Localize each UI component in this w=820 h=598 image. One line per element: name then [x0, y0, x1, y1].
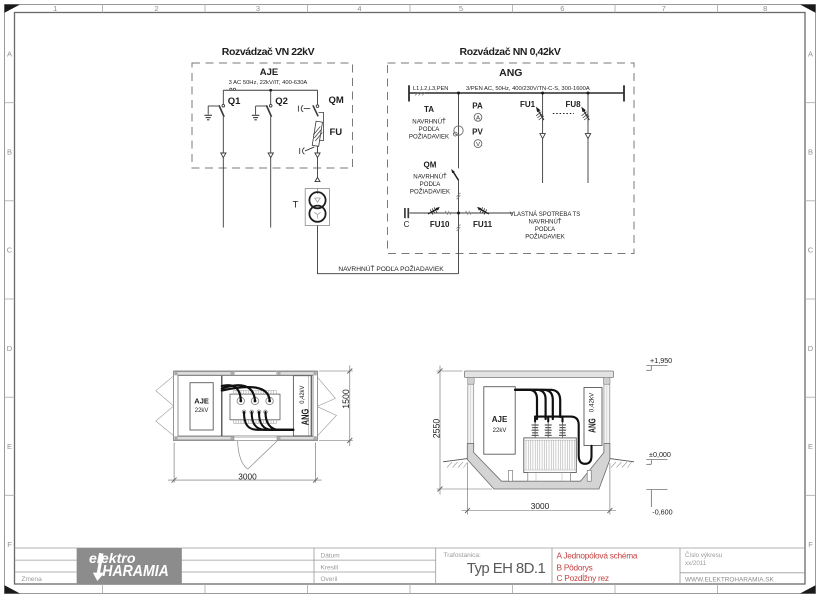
svg-text:Trafostanica:: Trafostanica:	[444, 552, 482, 559]
svg-text:POŽIADAVIEK: POŽIADAVIEK	[409, 133, 449, 141]
svg-text:VLASTNÁ SPOTREBA TS: VLASTNÁ SPOTREBA TS	[510, 211, 581, 218]
svg-text:ANG: ANG	[499, 67, 522, 79]
svg-text:22kV: 22kV	[195, 408, 209, 414]
svg-text:PODĽA: PODĽA	[535, 227, 555, 233]
svg-text:D: D	[808, 344, 814, 353]
svg-text:0,42kV: 0,42kV	[300, 386, 306, 404]
svg-text:WWW.ELEKTROHARAMIA.SK: WWW.ELEKTROHARAMIA.SK	[685, 576, 775, 583]
svg-text:±0,000: ±0,000	[649, 450, 671, 459]
svg-text:A Jednopólová schéma: A Jednopólová schéma	[557, 551, 638, 561]
svg-text:Číslo výkresu: Číslo výkresu	[685, 552, 723, 559]
svg-text:NAVRHNÚŤ PODĽA POŽIADAVIEK: NAVRHNÚŤ PODĽA POŽIADAVIEK	[338, 264, 444, 273]
svg-text:Dátum: Dátum	[321, 553, 340, 560]
svg-text:A: A	[7, 49, 12, 58]
svg-text:FU8: FU8	[565, 100, 581, 109]
svg-text:1: 1	[53, 4, 57, 13]
svg-text:PODĽA: PODĽA	[419, 126, 441, 133]
svg-text:NAVRHNÚŤ: NAVRHNÚŤ	[412, 118, 446, 126]
svg-text:FU10: FU10	[430, 220, 450, 229]
svg-text:B: B	[7, 148, 12, 157]
svg-text:Zmena: Zmena	[22, 576, 43, 583]
svg-text:4: 4	[357, 4, 361, 13]
svg-text:T: T	[293, 200, 299, 211]
svg-text:2550: 2550	[432, 419, 442, 439]
svg-text:AJE: AJE	[260, 67, 278, 78]
svg-text:PV: PV	[472, 128, 483, 137]
svg-text:PA: PA	[472, 102, 483, 111]
svg-text:5: 5	[459, 4, 463, 13]
svg-text:2: 2	[155, 4, 159, 13]
svg-text:6: 6	[560, 4, 564, 13]
svg-text:8: 8	[763, 4, 767, 13]
svg-text:Rozvádzač NN 0,42kV: Rozvádzač NN 0,42kV	[460, 46, 561, 58]
svg-text:A: A	[808, 49, 813, 58]
svg-text:Q2: Q2	[275, 96, 288, 107]
svg-text:Typ EH 8D.1: Typ EH 8D.1	[467, 560, 546, 577]
svg-text:FU1: FU1	[520, 100, 536, 109]
svg-text:E: E	[808, 442, 813, 451]
svg-text:1500: 1500	[341, 389, 351, 409]
svg-text:F: F	[7, 540, 12, 549]
svg-text:C: C	[404, 220, 410, 229]
svg-text:+1,950: +1,950	[650, 356, 672, 365]
svg-text:V: V	[476, 142, 480, 148]
svg-text:3/PEN AC, 50Hz, 400/230V/TN-C-: 3/PEN AC, 50Hz, 400/230V/TN-C-S, 300-160…	[466, 86, 590, 92]
svg-text:POŽIADAVIEK: POŽIADAVIEK	[410, 188, 450, 196]
svg-text:POŽIADAVIEK: POŽIADAVIEK	[525, 233, 565, 241]
svg-text:FU11: FU11	[473, 220, 493, 229]
svg-text:E: E	[7, 442, 12, 451]
svg-text:xx/2011: xx/2011	[685, 560, 707, 567]
svg-text:0,42kV: 0,42kV	[589, 392, 596, 412]
svg-text:-0,600: -0,600	[652, 508, 672, 517]
svg-text:AJE: AJE	[194, 397, 209, 406]
svg-text:Kreslil: Kreslil	[321, 565, 339, 572]
svg-text:NAVRHNÚŤ: NAVRHNÚŤ	[529, 218, 562, 226]
svg-text:Overil: Overil	[321, 576, 339, 583]
svg-text:C Pozdĺžny rez: C Pozdĺžny rez	[557, 572, 609, 583]
svg-text:L1,L2,L3,PEN: L1,L2,L3,PEN	[413, 86, 448, 92]
svg-text:B Pôdorys: B Pôdorys	[557, 562, 593, 572]
svg-text:B: B	[808, 148, 813, 157]
svg-text:PODĽA: PODĽA	[420, 181, 442, 188]
svg-text:TA: TA	[424, 105, 434, 114]
svg-text:3: 3	[256, 4, 260, 13]
svg-text:Q1: Q1	[228, 96, 241, 107]
svg-text:Rozvádzač VN 22kV: Rozvádzač VN 22kV	[222, 46, 315, 58]
svg-text:3000: 3000	[531, 501, 550, 511]
svg-text:A: A	[476, 116, 480, 122]
svg-text:ANG: ANG	[300, 409, 312, 426]
svg-text:D: D	[7, 344, 13, 353]
svg-text:HARAMIA: HARAMIA	[102, 563, 169, 580]
svg-text:FU: FU	[330, 127, 343, 138]
svg-text:22kV: 22kV	[493, 428, 507, 434]
svg-text:NAVRHNÚŤ: NAVRHNÚŤ	[413, 173, 447, 181]
svg-text:AJE: AJE	[492, 415, 508, 424]
svg-text:QM: QM	[329, 95, 344, 106]
svg-text:QM: QM	[424, 161, 437, 170]
svg-text:C: C	[808, 246, 814, 255]
svg-text:C: C	[7, 246, 13, 255]
svg-text:3 AC 50Hz, 22kV/IT, 400-630A: 3 AC 50Hz, 22kV/IT, 400-630A	[229, 80, 308, 86]
svg-text:3000: 3000	[238, 472, 257, 482]
svg-text:F: F	[808, 540, 813, 549]
svg-text:7: 7	[662, 4, 666, 13]
svg-text:ANG: ANG	[587, 418, 598, 433]
